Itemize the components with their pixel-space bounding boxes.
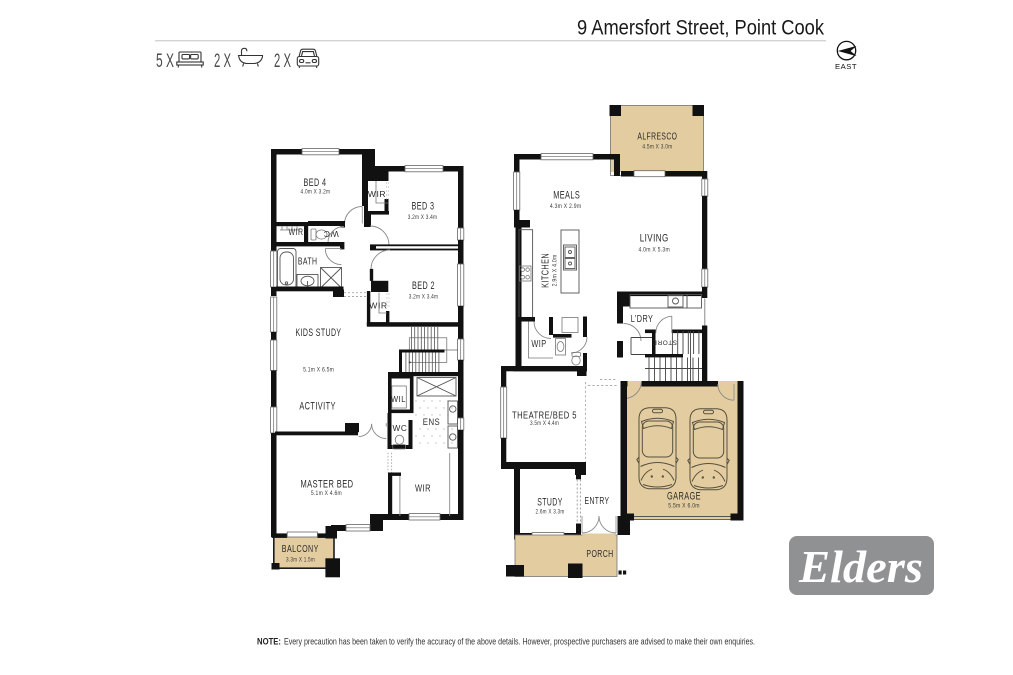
svg-text:WC: WC — [393, 423, 408, 433]
svg-text:L’DRY: L’DRY — [631, 314, 654, 325]
svg-text:5 X: 5 X — [156, 51, 174, 72]
svg-text:BED 3: BED 3 — [412, 201, 435, 213]
svg-text:Elders: Elders — [798, 541, 923, 592]
svg-text:BED 4: BED 4 — [304, 177, 327, 189]
svg-text:WC: WC — [323, 229, 339, 239]
svg-text:4.0m X 5.3m: 4.0m X 5.3m — [638, 246, 670, 253]
svg-text:WIR: WIR — [368, 189, 387, 199]
svg-text:STUDY: STUDY — [537, 497, 562, 509]
svg-text:2.6m X 3.3m: 2.6m X 3.3m — [536, 509, 565, 516]
svg-text:4.0m X 3.2m: 4.0m X 3.2m — [301, 189, 331, 196]
svg-text:KIDS STUDY: KIDS STUDY — [296, 327, 342, 339]
svg-text:BED 2: BED 2 — [412, 280, 435, 292]
svg-text:2.9m X 4.0m: 2.9m X 4.0m — [552, 254, 559, 286]
svg-text:4.3m X 2.9m: 4.3m X 2.9m — [550, 203, 582, 210]
svg-text:3.2m X 3.4m: 3.2m X 3.4m — [409, 293, 439, 300]
svg-text:3.2m X 3.4m: 3.2m X 3.4m — [408, 214, 438, 221]
svg-text:ENS: ENS — [423, 416, 441, 427]
svg-text:BATH: BATH — [298, 256, 318, 267]
svg-text:3.3m X 1.5m: 3.3m X 1.5m — [286, 557, 315, 564]
svg-text:PORCH: PORCH — [586, 549, 613, 560]
svg-text:ALFRESCO: ALFRESCO — [637, 132, 677, 143]
svg-text:WIR: WIR — [369, 301, 388, 311]
svg-text:NOTE:: NOTE: — [257, 637, 281, 647]
svg-text:WIP: WIP — [531, 339, 546, 350]
svg-text:WIR: WIR — [289, 227, 304, 237]
svg-text:WIL: WIL — [391, 394, 406, 404]
svg-text:3.5m X 4.4m: 3.5m X 4.4m — [530, 420, 559, 427]
svg-text:WIR: WIR — [415, 484, 431, 495]
svg-text:ACTIVITY: ACTIVITY — [299, 401, 336, 413]
svg-text:2 X: 2 X — [214, 51, 231, 72]
svg-text:9 Amersfort Street, Point Cook: 9 Amersfort Street, Point Cook — [577, 17, 824, 40]
svg-text:2 X: 2 X — [274, 51, 291, 72]
svg-text:5.5m X 6.0m: 5.5m X 6.0m — [668, 502, 700, 509]
svg-text:5.1m X 6.5m: 5.1m X 6.5m — [303, 367, 334, 374]
svg-text:5.1m X 4.6m: 5.1m X 4.6m — [311, 490, 342, 497]
svg-text:LIVING: LIVING — [640, 232, 669, 244]
svg-text:MASTER BED: MASTER BED — [301, 479, 354, 491]
svg-text:EAST: EAST — [835, 62, 857, 71]
svg-text:STORE: STORE — [652, 339, 677, 346]
svg-text:Every precaution has been take: Every precaution has been taken to verif… — [284, 637, 755, 647]
svg-text:4.5m X 3.0m: 4.5m X 3.0m — [642, 144, 672, 151]
svg-text:KITCHEN: KITCHEN — [541, 253, 552, 288]
svg-text:ENTRY: ENTRY — [585, 496, 610, 507]
svg-text:GARAGE: GARAGE — [667, 491, 701, 503]
svg-text:MEALS: MEALS — [553, 190, 580, 202]
svg-text:BALCONY: BALCONY — [282, 544, 319, 555]
